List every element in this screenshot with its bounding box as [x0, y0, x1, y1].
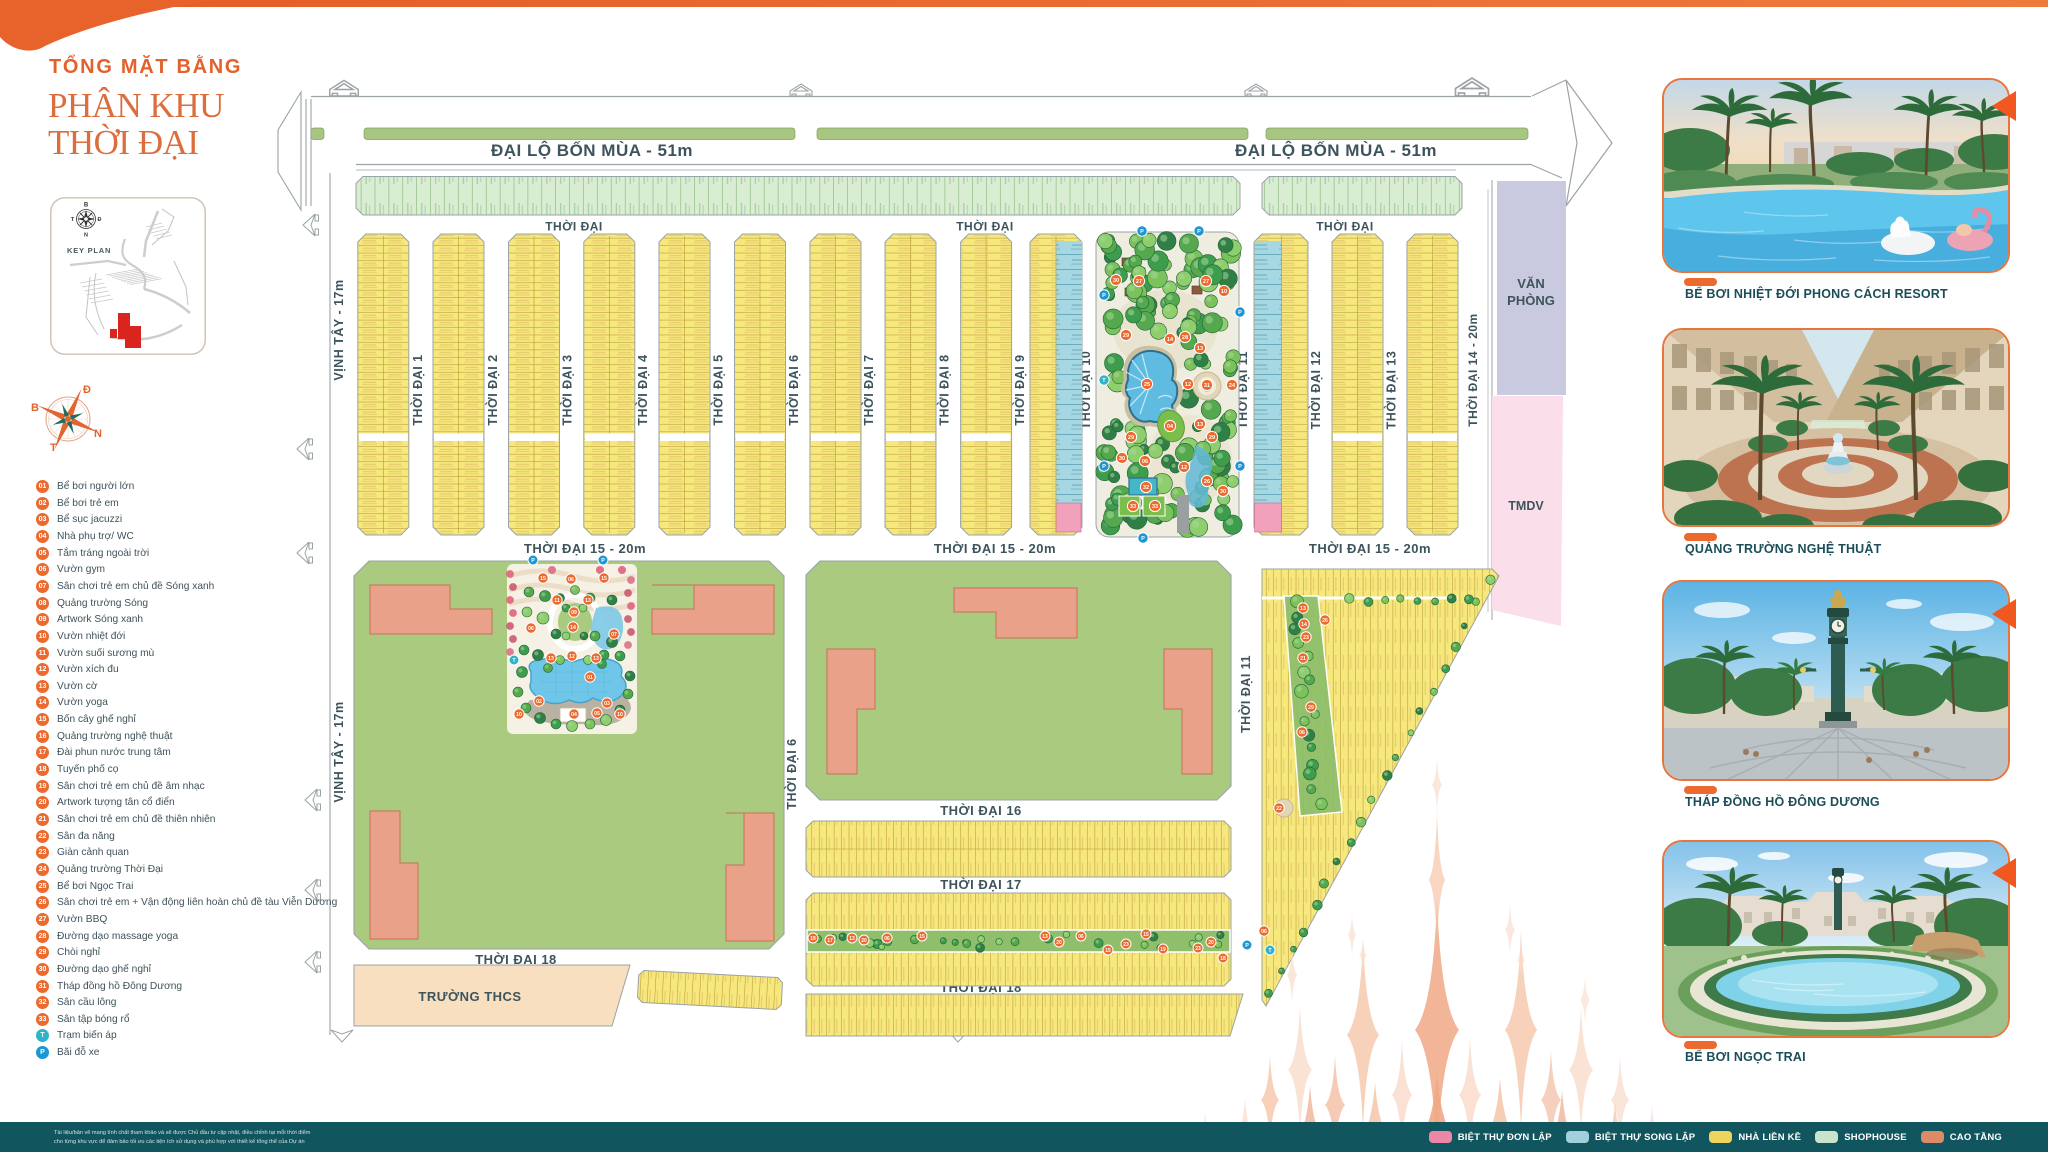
svg-text:13: 13 [548, 656, 554, 662]
svg-text:THỜI ĐẠI 4: THỜI ĐẠI 4 [635, 354, 650, 425]
svg-text:15: 15 [540, 576, 546, 582]
svg-text:THỜI ĐẠI 3: THỜI ĐẠI 3 [560, 354, 575, 425]
svg-text:06: 06 [528, 626, 534, 632]
svg-text:T: T [1102, 378, 1106, 384]
svg-text:THỜI ĐẠI 2: THỜI ĐẠI 2 [485, 354, 500, 425]
svg-text:THỜI ĐẠI 13: THỜI ĐẠI 13 [1383, 351, 1398, 430]
svg-text:13: 13 [593, 656, 599, 662]
svg-text:THỜI ĐẠI 6: THỜI ĐẠI 6 [784, 738, 799, 809]
svg-text:Đ: Đ [98, 217, 102, 223]
svg-text:14: 14 [570, 625, 576, 631]
svg-text:THỜI ĐẠI 17: THỜI ĐẠI 17 [940, 877, 1022, 892]
svg-text:06: 06 [1078, 934, 1084, 940]
svg-text:KEY PLAN: KEY PLAN [67, 246, 111, 255]
svg-text:P: P [1102, 293, 1106, 299]
svg-text:06: 06 [568, 577, 574, 583]
svg-text:THỜI ĐẠI 12: THỜI ĐẠI 12 [1308, 351, 1323, 430]
svg-text:T: T [50, 442, 57, 454]
svg-text:20: 20 [1056, 940, 1062, 946]
svg-text:10: 10 [516, 712, 522, 718]
svg-text:17: 17 [827, 938, 833, 944]
svg-text:06: 06 [884, 936, 890, 942]
svg-text:18: 18 [810, 936, 816, 942]
svg-text:12: 12 [1185, 382, 1191, 388]
svg-text:TRƯỜNG THCS: TRƯỜNG THCS [418, 989, 521, 1004]
svg-text:ĐẠI LỘ BỐN MÙA - 51m: ĐẠI LỘ BỐN MÙA - 51m [491, 140, 693, 160]
svg-text:THỜI ĐẠI 1: THỜI ĐẠI 1 [410, 354, 425, 425]
svg-text:23: 23 [1123, 942, 1129, 948]
svg-text:14: 14 [1167, 337, 1174, 343]
svg-text:THỜI ĐẠI: THỜI ĐẠI [956, 219, 1014, 234]
svg-text:THỜI ĐẠI: THỜI ĐẠI [545, 219, 603, 234]
svg-text:15: 15 [919, 934, 925, 940]
svg-text:P: P [601, 558, 605, 564]
svg-text:THỜI ĐẠI 8: THỜI ĐẠI 8 [937, 354, 952, 425]
svg-text:30: 30 [1220, 489, 1226, 495]
svg-text:27: 27 [1136, 279, 1142, 285]
svg-text:15: 15 [1105, 948, 1111, 954]
svg-text:06: 06 [1261, 929, 1267, 935]
svg-text:THỜI ĐẠI 7: THỜI ĐẠI 7 [861, 354, 876, 425]
svg-text:06: 06 [1142, 459, 1148, 465]
svg-text:24: 24 [1229, 383, 1236, 389]
svg-text:01: 01 [587, 675, 593, 681]
svg-text:PHÒNG: PHÒNG [1507, 293, 1555, 308]
svg-text:VỊNH TÂY - 17m: VỊNH TÂY - 17m [331, 279, 346, 380]
svg-text:29: 29 [1128, 435, 1134, 441]
svg-text:ĐẠI LỘ BỐN MÙA - 51m: ĐẠI LỘ BỐN MÙA - 51m [1235, 140, 1437, 160]
svg-text:23: 23 [1195, 946, 1201, 952]
svg-text:26: 26 [1204, 479, 1210, 485]
svg-text:22: 22 [1276, 806, 1282, 812]
svg-text:07: 07 [611, 632, 617, 638]
svg-text:21: 21 [1300, 656, 1306, 662]
svg-text:13: 13 [1042, 934, 1048, 940]
svg-text:30: 30 [1119, 456, 1125, 462]
svg-text:13: 13 [1197, 346, 1203, 352]
svg-text:30: 30 [1113, 278, 1119, 284]
svg-text:N: N [84, 233, 88, 239]
svg-text:04: 04 [571, 712, 577, 718]
svg-text:P: P [1141, 536, 1145, 542]
svg-text:P: P [1197, 229, 1201, 235]
svg-text:VỊNH TÂY - 17m: VỊNH TÂY - 17m [331, 701, 346, 802]
svg-text:29: 29 [1308, 705, 1314, 711]
svg-text:P: P [531, 558, 535, 564]
svg-text:P: P [1102, 464, 1106, 470]
svg-text:31: 31 [1204, 383, 1210, 389]
svg-text:12: 12 [569, 654, 575, 660]
svg-text:THỜI ĐẠI 15 - 20m: THỜI ĐẠI 15 - 20m [524, 541, 646, 556]
svg-text:20: 20 [1208, 940, 1214, 946]
svg-text:THỜI ĐẠI 15 - 20m: THỜI ĐẠI 15 - 20m [1309, 541, 1431, 556]
svg-text:P: P [1238, 310, 1242, 316]
svg-text:33: 33 [1152, 504, 1158, 510]
svg-text:09: 09 [571, 610, 577, 616]
svg-text:12: 12 [1181, 465, 1187, 471]
svg-text:THỜI ĐẠI 6: THỜI ĐẠI 6 [786, 354, 801, 425]
svg-text:VĂN: VĂN [1517, 276, 1544, 291]
svg-text:P: P [1238, 464, 1242, 470]
svg-text:20: 20 [861, 938, 867, 944]
svg-text:N: N [94, 428, 102, 440]
svg-text:P: P [1245, 943, 1249, 949]
svg-text:Đ: Đ [83, 384, 91, 396]
svg-text:27: 27 [1203, 279, 1209, 285]
svg-text:11: 11 [554, 598, 560, 604]
svg-text:THỜI ĐẠI 5: THỜI ĐẠI 5 [710, 354, 725, 425]
svg-text:THỜI ĐẠI 16: THỜI ĐẠI 16 [940, 803, 1022, 818]
svg-text:THỜI ĐẠI 15 - 20m: THỜI ĐẠI 15 - 20m [934, 541, 1056, 556]
svg-text:13: 13 [1197, 422, 1203, 428]
svg-text:32: 32 [1143, 485, 1149, 491]
svg-text:THỜI ĐẠI 9: THỜI ĐẠI 9 [1012, 354, 1027, 425]
svg-text:13: 13 [849, 936, 855, 942]
svg-text:18: 18 [1220, 956, 1226, 962]
svg-text:B: B [31, 402, 39, 414]
svg-text:05: 05 [594, 711, 600, 717]
svg-text:04: 04 [1167, 424, 1174, 430]
svg-text:THỜI ĐẠI 14 - 20m: THỜI ĐẠI 14 - 20m [1465, 313, 1480, 426]
svg-text:33: 33 [1130, 504, 1136, 510]
svg-text:15: 15 [601, 576, 607, 582]
svg-text:B: B [84, 203, 89, 209]
svg-text:TMDV: TMDV [1508, 499, 1544, 513]
svg-text:P: P [1140, 229, 1144, 235]
svg-text:29: 29 [1123, 333, 1129, 339]
svg-text:28: 28 [1182, 335, 1188, 341]
svg-text:10: 10 [1221, 289, 1227, 295]
svg-text:06: 06 [1299, 730, 1305, 736]
svg-text:10: 10 [617, 712, 623, 718]
svg-text:13: 13 [585, 598, 591, 604]
svg-text:19: 19 [1160, 947, 1166, 953]
svg-text:14: 14 [1301, 622, 1307, 628]
svg-text:02: 02 [536, 699, 542, 705]
svg-text:THỜI ĐẠI: THỜI ĐẠI [1316, 219, 1374, 234]
svg-text:25: 25 [1144, 382, 1150, 388]
svg-text:13: 13 [1300, 606, 1306, 612]
svg-text:29: 29 [1209, 435, 1215, 441]
svg-text:26: 26 [1322, 618, 1328, 624]
svg-text:15: 15 [1143, 932, 1149, 938]
svg-text:THỜI ĐẠI 11: THỜI ĐẠI 11 [1238, 655, 1253, 733]
svg-text:03: 03 [604, 701, 610, 707]
svg-text:23: 23 [1303, 635, 1309, 641]
